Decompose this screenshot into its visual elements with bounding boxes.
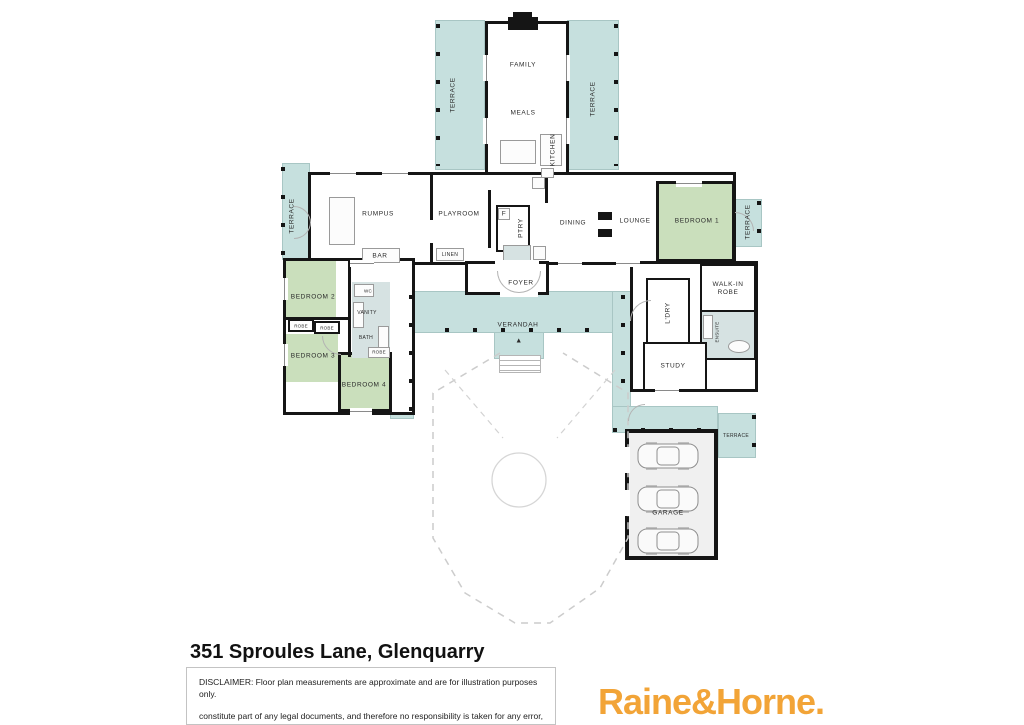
label-walk-in-robe: WALK-IN ROBE [705, 281, 751, 297]
label-linen: LINEN [442, 252, 458, 258]
label-robe1: ROBE [294, 324, 308, 329]
label-terrace-bedroom1: TERRACE [745, 204, 752, 239]
label-robe3: ROBE [372, 350, 386, 355]
post-row [436, 24, 440, 166]
fridge-box-kitchen [532, 177, 545, 189]
wall [545, 175, 548, 203]
disclaimer-line2: constitute part of any legal documents, … [199, 711, 543, 725]
wall [430, 243, 433, 263]
label-vanity: VANITY [357, 310, 377, 316]
window [350, 260, 374, 267]
door-opening [495, 260, 539, 266]
window [350, 408, 372, 415]
post-row [621, 295, 625, 407]
fireplace [598, 212, 612, 220]
label-fridge: F [502, 211, 507, 218]
bedroom2-area [286, 261, 336, 317]
window [558, 260, 582, 267]
label-bedroom2: BEDROOM 2 [291, 294, 335, 301]
ensuite-tub [728, 340, 750, 353]
label-laundry: L'DRY [665, 302, 672, 323]
label-wc: WC [364, 289, 372, 294]
label-terrace-top-left: TERRACE [450, 77, 457, 112]
label-kitchen: KITCHEN [550, 134, 557, 167]
label-ensuite: ENSUITE [715, 322, 720, 343]
window [483, 118, 490, 144]
kitchen-island [500, 140, 536, 164]
ensuite-vanity [703, 315, 713, 339]
label-terrace-garage: TERRACE [723, 433, 749, 439]
window [483, 55, 490, 81]
floor-plan-page: ▲ TERRACE TERRACE FAMILY MEALS KITCHEN T… [0, 0, 1024, 725]
label-terrace-mid-left: TERRACE [289, 198, 296, 233]
window [382, 170, 408, 177]
label-terrace-top-right: TERRACE [590, 81, 597, 116]
label-meals: MEALS [510, 110, 535, 117]
label-pantry: PTRY [518, 218, 525, 238]
label-garage: GARAGE [652, 510, 683, 517]
wall [430, 175, 433, 220]
window [281, 278, 288, 300]
label-robe2: ROBE [320, 326, 334, 331]
garage-door-opening [623, 490, 630, 516]
disclaimer-box: DISCLAIMER: Floor plan measurements are … [186, 667, 556, 725]
bath-divider [348, 261, 351, 357]
window [281, 344, 288, 366]
page-title: 351 Sproules Lane, Glenquarry [190, 641, 485, 664]
label-foyer: FOYER [508, 280, 533, 287]
label-family: FAMILY [510, 62, 536, 69]
post-row [757, 201, 761, 245]
label-playroom: PLAYROOM [438, 211, 479, 218]
window [655, 387, 679, 394]
car-icon [636, 526, 700, 556]
label-bedroom1: BEDROOM 1 [675, 218, 719, 225]
driveway-outline [415, 338, 645, 630]
garage-door-opening [623, 447, 630, 473]
label-rumpus: RUMPUS [362, 211, 394, 218]
entry-steps [499, 355, 541, 373]
terrace-top-left [435, 20, 485, 170]
entry-arrow: ▲ [515, 338, 523, 345]
label-bath: BATH [359, 335, 373, 341]
powder-wc [533, 246, 546, 260]
car-icon [636, 441, 700, 471]
post-row [445, 328, 609, 332]
chimney-cap [513, 12, 532, 19]
window [616, 260, 640, 267]
label-bar: BAR [372, 253, 387, 260]
post-row [614, 24, 618, 166]
fireplace [598, 229, 612, 237]
window [676, 180, 702, 187]
brand-logo: Raine&Horne. [598, 681, 824, 723]
pool-table [329, 197, 355, 245]
post-row [752, 415, 756, 457]
disclaimer-line1: DISCLAIMER: Floor plan measurements are … [199, 677, 543, 701]
label-bedroom4: BEDROOM 4 [342, 382, 386, 389]
post-row [281, 167, 285, 257]
label-study: STUDY [660, 363, 685, 370]
label-verandah: VERANDAH [498, 322, 539, 329]
window [330, 170, 356, 177]
post-row [409, 295, 413, 417]
post-row [613, 428, 717, 432]
label-lounge: LOUNGE [619, 218, 650, 225]
window [563, 118, 570, 144]
label-dining: DINING [560, 220, 586, 227]
label-bedroom3: BEDROOM 3 [291, 353, 335, 360]
window [563, 55, 570, 81]
wall [488, 190, 491, 248]
